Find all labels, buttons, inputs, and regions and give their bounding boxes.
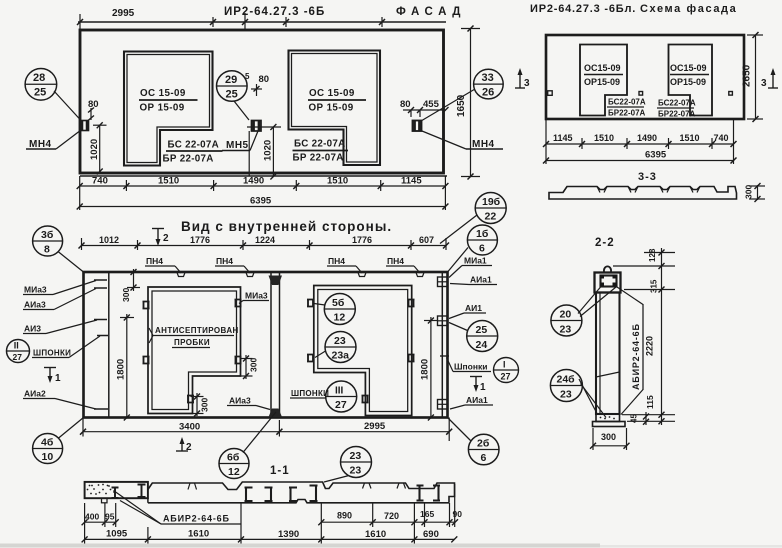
svg-text:23: 23 (350, 450, 362, 462)
svg-text:607: 607 (419, 235, 434, 245)
svg-text:1510: 1510 (680, 133, 700, 143)
svg-text:4б: 4б (41, 437, 54, 449)
svg-text:ШПОНКИ: ШПОНКИ (291, 389, 329, 398)
svg-text:III: III (335, 386, 344, 397)
svg-text:1776: 1776 (352, 235, 372, 245)
svg-text:23: 23 (334, 335, 346, 347)
svg-text:1145: 1145 (553, 133, 573, 143)
svg-text:БР22-07А: БР22-07А (658, 110, 696, 119)
svg-text:ИР2-64.27.3 -6Бл.: ИР2-64.27.3 -6Бл. (530, 3, 636, 15)
svg-text:1490: 1490 (637, 133, 657, 143)
svg-text:455: 455 (423, 99, 440, 110)
svg-text:БС 22-07А: БС 22-07А (294, 139, 346, 150)
svg-text:АИа1: АИа1 (466, 395, 488, 405)
svg-text:300: 300 (121, 288, 131, 302)
svg-text:ОР 15-09: ОР 15-09 (140, 103, 185, 114)
svg-text:1б: 1б (476, 228, 489, 240)
svg-text:БР 22-07А: БР 22-07А (163, 154, 214, 165)
svg-text:300: 300 (601, 432, 616, 442)
svg-text:6395: 6395 (645, 150, 667, 161)
svg-text:2650: 2650 (742, 64, 753, 87)
svg-text:740: 740 (92, 176, 108, 187)
svg-text:2-2: 2-2 (595, 237, 615, 249)
svg-text:1145: 1145 (401, 176, 422, 187)
svg-text:2995: 2995 (112, 8, 135, 19)
svg-text:315: 315 (650, 279, 659, 293)
svg-text:АНТИСЕПТИРОВАН: АНТИСЕПТИРОВАН (155, 326, 239, 335)
svg-text:27: 27 (501, 372, 511, 382)
svg-text:25: 25 (476, 324, 488, 336)
svg-text:3б: 3б (41, 229, 54, 241)
svg-text:25: 25 (34, 87, 46, 99)
svg-text:Шпонки: Шпонки (454, 362, 487, 372)
svg-text:23: 23 (350, 465, 362, 477)
svg-text:28: 28 (33, 72, 45, 84)
svg-text:2995: 2995 (364, 421, 386, 432)
svg-text:II: II (14, 341, 19, 351)
svg-text:115: 115 (645, 395, 655, 409)
svg-text:ОС 15-09: ОС 15-09 (309, 88, 355, 99)
svg-text:29: 29 (225, 74, 237, 86)
svg-text:1390: 1390 (278, 529, 299, 540)
svg-text:400: 400 (85, 512, 99, 522)
svg-text:1490: 1490 (243, 176, 264, 187)
svg-text:1776: 1776 (190, 235, 210, 245)
svg-text:ФАСАД: ФАСАД (396, 6, 466, 18)
svg-text:АИ3: АИ3 (24, 324, 41, 334)
svg-text:25: 25 (226, 89, 238, 101)
svg-text:Вид с внутренней стороны.: Вид с внутренней стороны. (181, 219, 392, 234)
svg-text:300: 300 (744, 185, 754, 199)
svg-text:ОР15-09: ОР15-09 (670, 77, 706, 87)
svg-text:12: 12 (334, 312, 346, 324)
svg-text:1020: 1020 (263, 140, 274, 161)
svg-text:890: 890 (337, 511, 352, 521)
svg-text:23а: 23а (332, 350, 350, 362)
svg-text:6395: 6395 (250, 196, 272, 207)
svg-text:1800: 1800 (420, 359, 431, 380)
svg-text:ОС 15-09: ОС 15-09 (140, 88, 186, 99)
svg-text:МИа1: МИа1 (464, 256, 487, 266)
svg-text:ОР 15-09: ОР 15-09 (309, 103, 354, 114)
svg-text:1650: 1650 (456, 94, 467, 117)
svg-text:740: 740 (714, 133, 729, 143)
svg-text:ПН4: ПН4 (328, 256, 345, 266)
svg-text:Схема фасада: Схема фасада (640, 3, 737, 15)
svg-text:1095: 1095 (106, 529, 128, 540)
svg-text:3400: 3400 (179, 422, 200, 433)
svg-text:2: 2 (163, 233, 169, 244)
svg-text:6: 6 (479, 243, 485, 255)
svg-text:АИа3: АИа3 (24, 300, 46, 310)
svg-text:23: 23 (560, 324, 572, 336)
svg-text:95: 95 (105, 512, 115, 522)
svg-text:1224: 1224 (255, 235, 275, 245)
svg-text:22: 22 (485, 211, 497, 223)
svg-text:6: 6 (481, 452, 487, 464)
svg-text:2220: 2220 (645, 336, 655, 356)
svg-text:80: 80 (400, 99, 411, 110)
svg-text:ОР15-09: ОР15-09 (584, 77, 620, 87)
svg-text:24: 24 (476, 339, 488, 351)
svg-text:АБИР2-64-6Б: АБИР2-64-6Б (631, 323, 641, 390)
svg-text:АИа2: АИа2 (24, 389, 46, 399)
svg-text:720: 720 (384, 511, 399, 521)
svg-text:5: 5 (245, 72, 250, 81)
svg-text:ПН4: ПН4 (216, 256, 233, 266)
svg-text:МН5: МН5 (226, 140, 249, 151)
svg-text:23: 23 (560, 389, 572, 401)
svg-text:19б: 19б (482, 196, 501, 208)
svg-text:12: 12 (228, 466, 240, 478)
svg-text:20: 20 (560, 309, 572, 321)
svg-text:33: 33 (482, 72, 494, 84)
svg-text:5б: 5б (332, 297, 345, 309)
svg-text:ПРОБКИ: ПРОБКИ (174, 338, 210, 347)
svg-text:АИ1: АИ1 (465, 303, 482, 313)
svg-text:1: 1 (480, 382, 486, 393)
svg-text:БР22-07А: БР22-07А (608, 109, 646, 118)
svg-text:МИа3: МИа3 (24, 285, 47, 295)
svg-text:1610: 1610 (188, 529, 209, 540)
svg-text:6б: 6б (227, 452, 240, 464)
svg-text:8: 8 (44, 244, 50, 256)
svg-text:БС 22-07А: БС 22-07А (168, 140, 220, 151)
svg-text:27: 27 (335, 399, 347, 411)
svg-text:27: 27 (13, 352, 23, 362)
svg-text:1020: 1020 (89, 139, 100, 160)
svg-text:1510: 1510 (327, 176, 348, 187)
svg-text:ОС15-09: ОС15-09 (670, 63, 707, 73)
svg-text:2: 2 (186, 442, 192, 453)
svg-text:I: I (503, 360, 506, 370)
svg-text:1510: 1510 (158, 176, 179, 187)
svg-text:АИа3: АИа3 (229, 396, 251, 406)
svg-text:ПН4: ПН4 (387, 256, 404, 266)
svg-text:165: 165 (420, 509, 434, 519)
svg-text:1800: 1800 (116, 359, 127, 380)
svg-text:БС22-07А: БС22-07А (658, 99, 696, 108)
svg-text:1510: 1510 (594, 133, 614, 143)
svg-text:80: 80 (259, 74, 270, 85)
svg-text:1-1: 1-1 (270, 465, 290, 477)
svg-text:2б: 2б (477, 438, 490, 450)
svg-text:ИР2-64.27.3 -6Б: ИР2-64.27.3 -6Б (224, 6, 325, 18)
svg-text:300: 300 (249, 358, 259, 372)
svg-text:ШПОНКИ: ШПОНКИ (33, 349, 71, 358)
svg-text:128: 128 (648, 248, 657, 262)
svg-text:45: 45 (630, 414, 639, 423)
svg-text:1610: 1610 (365, 529, 386, 540)
svg-text:3-3: 3-3 (638, 171, 657, 183)
svg-text:АБИР2-64-6Б: АБИР2-64-6Б (163, 514, 230, 524)
svg-text:1: 1 (55, 373, 61, 384)
svg-text:БР 22-07А: БР 22-07А (293, 153, 344, 164)
svg-text:1012: 1012 (99, 235, 119, 245)
svg-text:МИа3: МИа3 (245, 291, 268, 301)
svg-text:24б: 24б (557, 374, 576, 386)
svg-text:3: 3 (761, 78, 767, 89)
svg-text:ОС15-09: ОС15-09 (584, 63, 621, 73)
svg-text:ПН4: ПН4 (146, 256, 163, 266)
svg-text:БС22-07А: БС22-07А (608, 98, 646, 107)
svg-text:АИа1: АИа1 (470, 275, 492, 285)
svg-text:300: 300 (200, 398, 210, 412)
svg-text:90: 90 (453, 509, 463, 519)
svg-text:10: 10 (42, 451, 54, 463)
svg-text:26: 26 (482, 87, 494, 99)
svg-text:690: 690 (423, 529, 439, 540)
